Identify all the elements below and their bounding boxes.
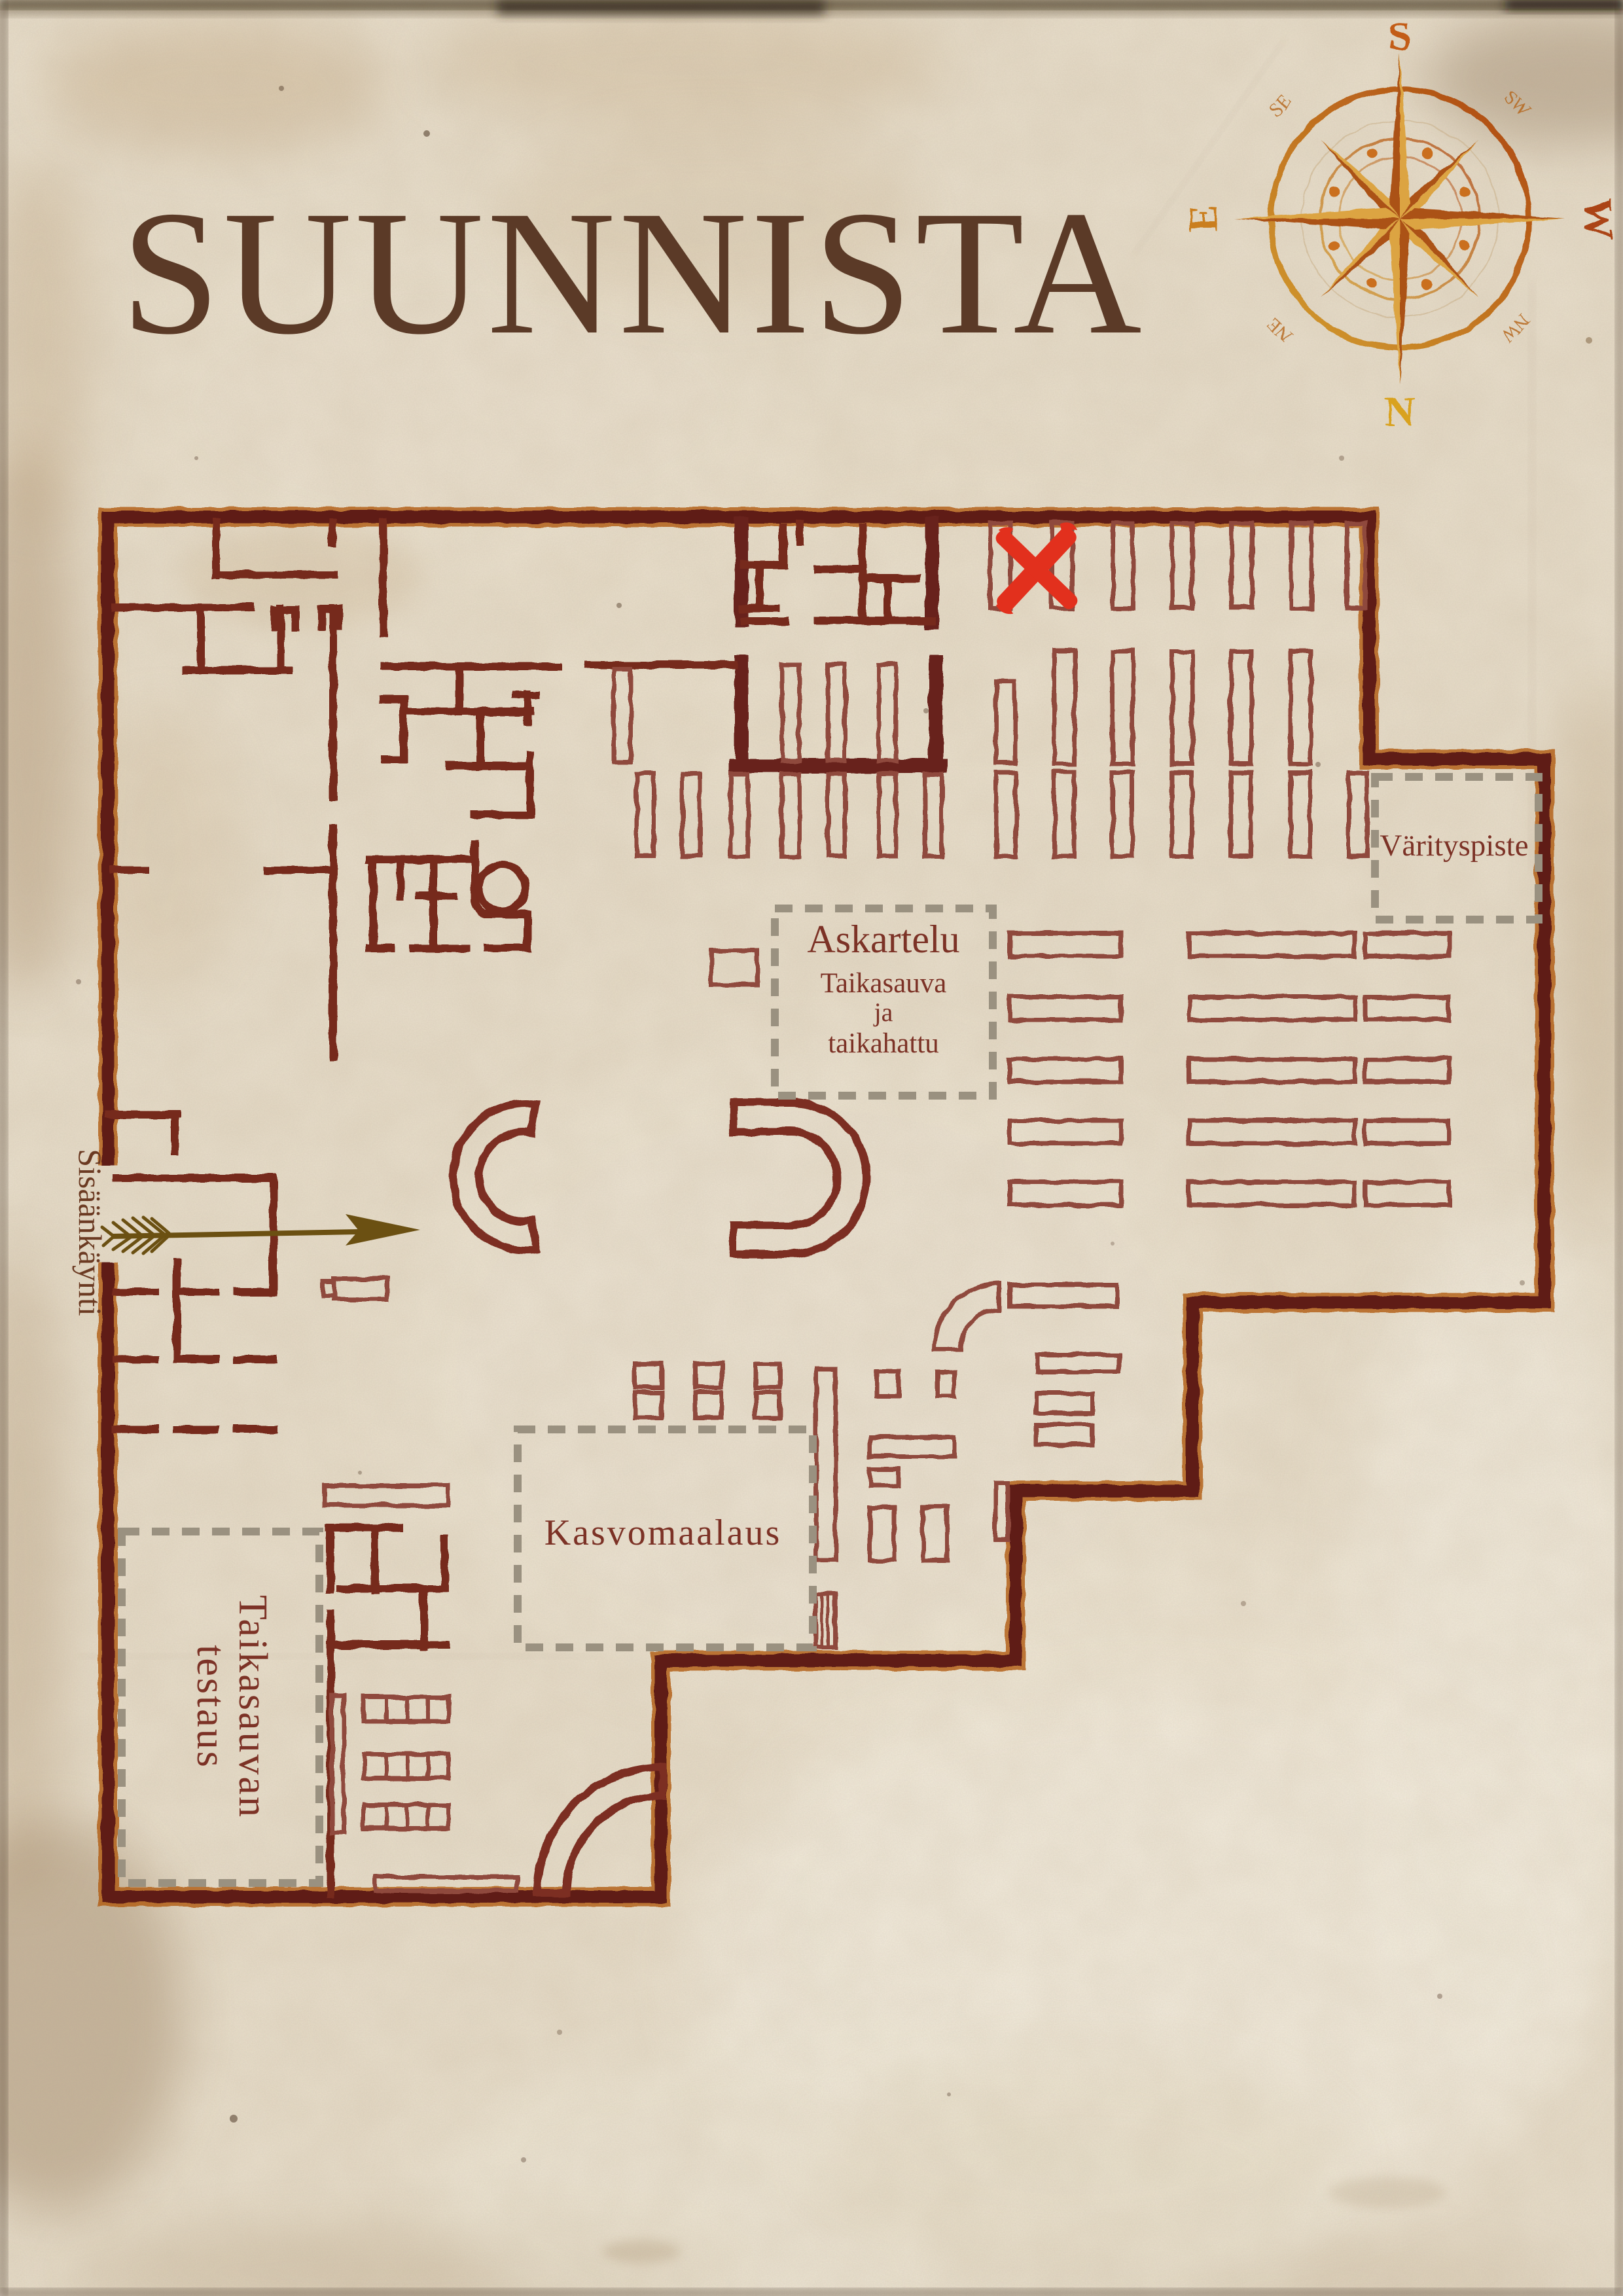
svg-text:Askartelu: Askartelu <box>807 918 959 961</box>
svg-text:N: N <box>1385 388 1415 435</box>
svg-text:Värityspiste: Värityspiste <box>1380 829 1528 863</box>
svg-text:E: E <box>1180 205 1226 233</box>
svg-text:testaus: testaus <box>188 1645 233 1769</box>
svg-text:S: S <box>1388 12 1412 59</box>
svg-text:Kasvomaalaus: Kasvomaalaus <box>544 1513 782 1553</box>
svg-text:SUUNNISTA: SUUNNISTA <box>121 174 1145 371</box>
svg-text:taikahattu: taikahattu <box>828 1028 939 1059</box>
svg-text:Taikasauvan: Taikasauvan <box>230 1595 275 1819</box>
svg-text:W: W <box>1575 198 1622 240</box>
svg-text:ja: ja <box>873 997 893 1027</box>
svg-text:Taikasauva: Taikasauva <box>821 968 947 999</box>
svg-text:Sisäänkäynti: Sisäänkäynti <box>72 1149 109 1316</box>
